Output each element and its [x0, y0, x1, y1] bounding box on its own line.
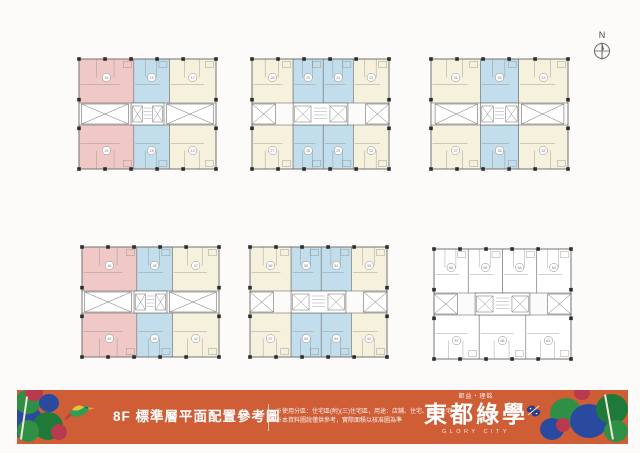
developer-logo: 鉅益・理銘	[413, 393, 539, 401]
title-divider	[268, 404, 269, 431]
floor-plan-3: 363533373832	[427, 55, 572, 173]
north-label: N	[588, 30, 616, 40]
svg-text:59: 59	[334, 337, 338, 341]
svg-text:54: 54	[334, 264, 338, 268]
svg-text:63: 63	[552, 266, 556, 270]
floor-plan-svg: 5655545357585952	[246, 243, 391, 361]
svg-text:65: 65	[483, 266, 487, 270]
svg-text:48: 48	[153, 337, 157, 341]
brand-name: 東都綠學	[413, 401, 539, 428]
svg-text:38: 38	[498, 149, 502, 153]
svg-text:33: 33	[541, 76, 545, 80]
svg-text:49: 49	[107, 337, 111, 341]
svg-text:35: 35	[498, 76, 502, 80]
svg-text:46: 46	[107, 264, 111, 268]
compass-icon	[591, 40, 613, 62]
brand-name-english: GLORY CITY	[413, 429, 539, 435]
svg-text:42: 42	[194, 337, 198, 341]
footer-banner: 8F 標準層平面配置參考圖 ※使用分區：住宅區(附)(三)住宅區，用途：店鋪、住…	[17, 390, 628, 444]
svg-text:28: 28	[306, 149, 310, 153]
svg-text:45: 45	[153, 264, 157, 268]
floor-plan-4: 464547494842	[78, 243, 223, 361]
floor-plan-svg: 464547494842	[78, 243, 223, 361]
svg-text:66: 66	[449, 266, 453, 270]
svg-text:55: 55	[304, 264, 308, 268]
svg-text:16: 16	[104, 76, 108, 80]
svg-text:24: 24	[336, 76, 340, 80]
svg-text:56: 56	[269, 264, 273, 268]
svg-text:17: 17	[191, 76, 195, 80]
floor-plan-5: 5655545357585952	[246, 243, 391, 361]
svg-text:53: 53	[367, 264, 371, 268]
tree-foliage-blob	[51, 424, 67, 440]
svg-text:32: 32	[541, 149, 545, 153]
hummingbird-icon	[63, 399, 97, 423]
svg-text:23: 23	[369, 76, 373, 80]
floor-plan-svg: 66656463676862	[430, 245, 575, 363]
tree-foliage-blob	[604, 420, 628, 442]
tree-illustration-right	[544, 390, 628, 444]
svg-text:57: 57	[269, 337, 273, 341]
plan-title: 8F 標準層平面配置參考圖	[113, 390, 281, 444]
svg-text:58: 58	[304, 337, 308, 341]
floor-plan-svg: 363533373832	[427, 55, 572, 173]
svg-text:22: 22	[369, 149, 373, 153]
svg-text:26: 26	[271, 76, 275, 80]
svg-text:15: 15	[150, 76, 154, 80]
floor-plan-1: 161517191812	[75, 55, 220, 173]
brand-block: 鉅益・理銘 東都綠學 GLORY CITY	[413, 393, 539, 435]
svg-text:18: 18	[150, 149, 154, 153]
svg-text:37: 37	[454, 149, 458, 153]
floor-plan-6: 66656463676862	[430, 245, 575, 363]
svg-text:62: 62	[546, 339, 550, 343]
tree-foliage-blob	[39, 394, 59, 412]
butterfly-icon	[525, 402, 543, 420]
floor-plan-svg: 161517191812	[75, 55, 220, 173]
svg-text:67: 67	[455, 339, 459, 343]
svg-text:27: 27	[271, 149, 275, 153]
svg-text:36: 36	[454, 76, 458, 80]
north-indicator: N	[588, 30, 616, 67]
scanned-page: N 161517191812 2625242327282922 36353337…	[0, 0, 640, 453]
svg-text:68: 68	[501, 339, 505, 343]
svg-text:52: 52	[367, 337, 371, 341]
floor-plan-svg: 2625242327282922	[248, 55, 393, 173]
floor-plan-2: 2625242327282922	[248, 55, 393, 173]
svg-text:47: 47	[194, 264, 198, 268]
svg-text:64: 64	[518, 266, 522, 270]
tree-foliage-blob	[574, 390, 590, 400]
svg-text:19: 19	[104, 149, 108, 153]
tree-foliage-blob	[556, 418, 570, 432]
svg-text:29: 29	[336, 149, 340, 153]
svg-text:12: 12	[191, 149, 195, 153]
svg-text:25: 25	[306, 76, 310, 80]
